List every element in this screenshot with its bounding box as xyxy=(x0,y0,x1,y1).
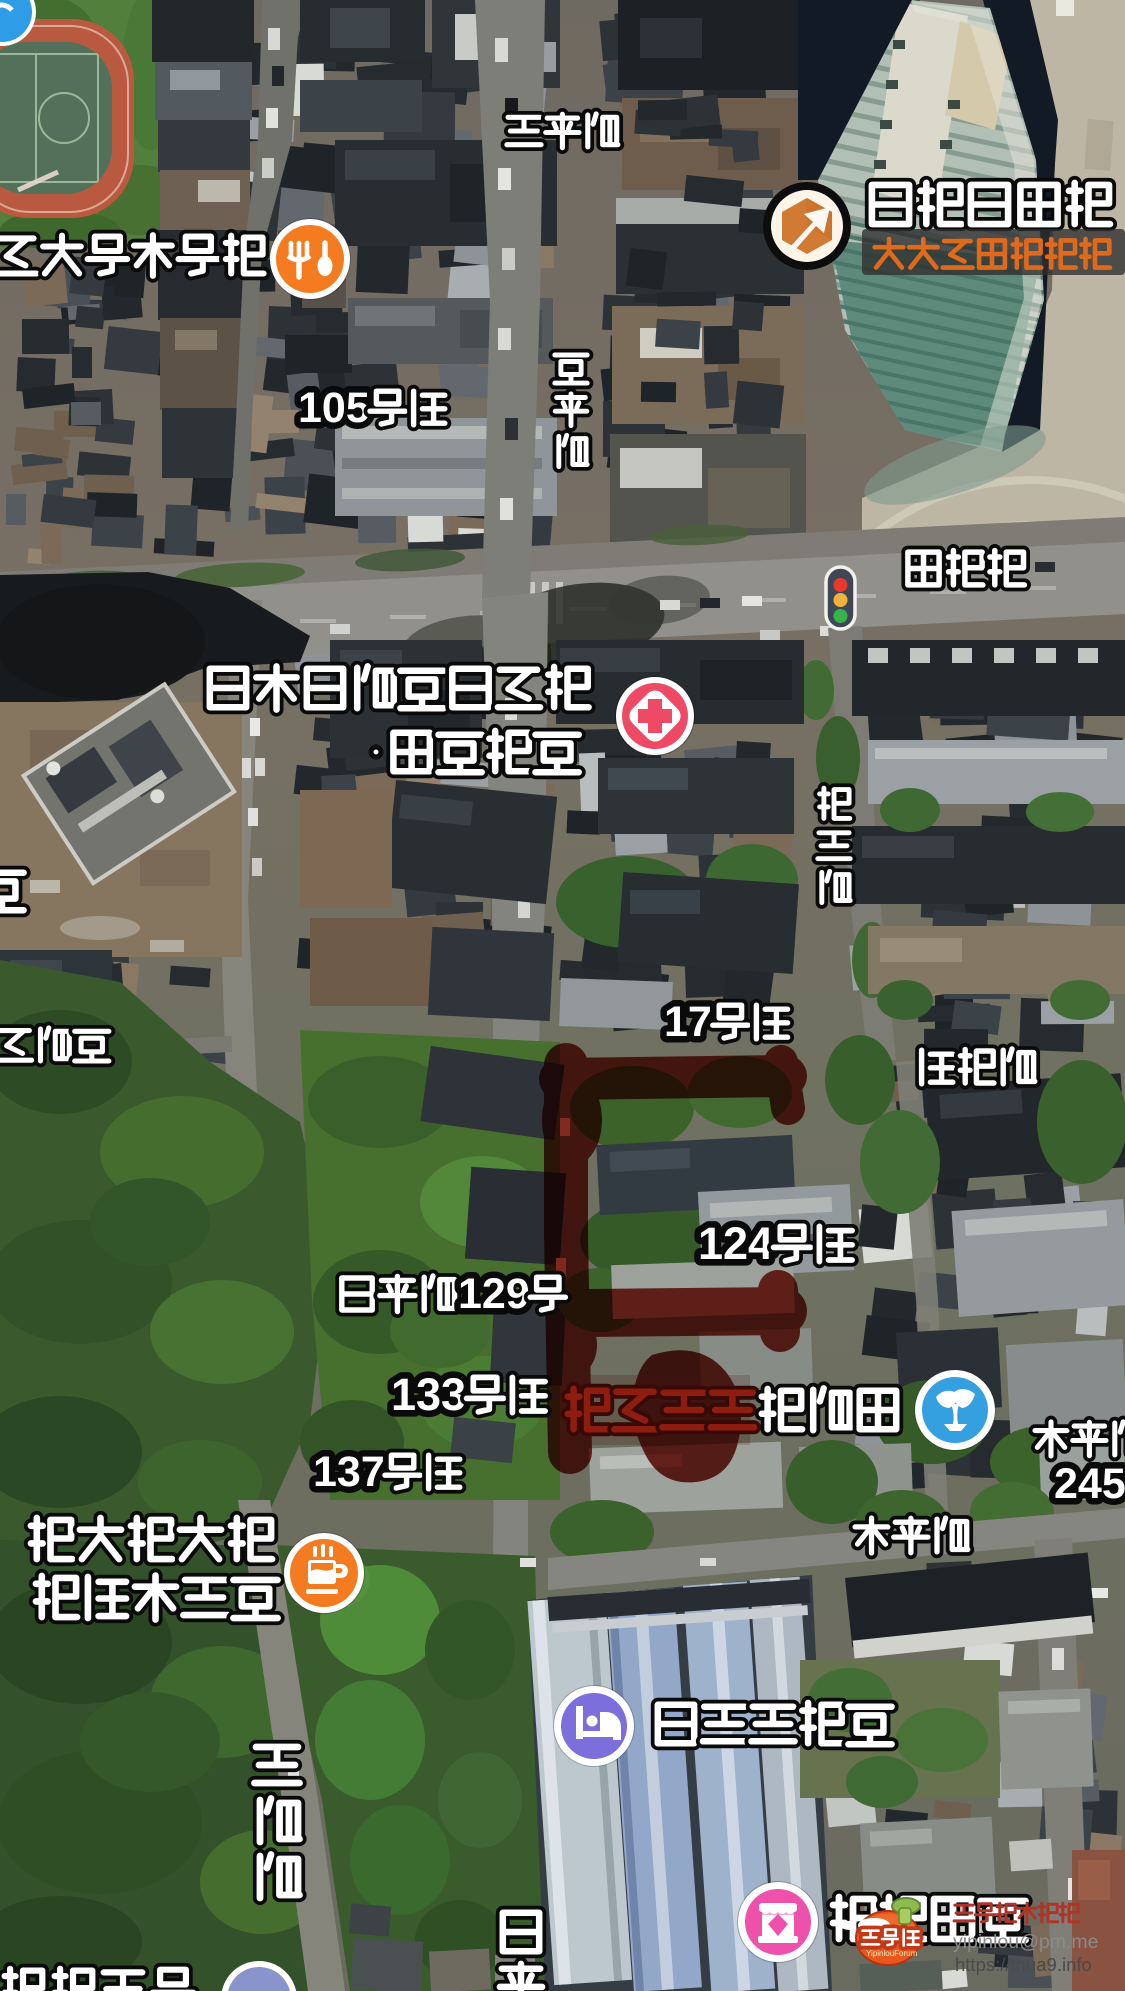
svg-text:245: 245 xyxy=(1054,1460,1125,1508)
svg-text:17: 17 xyxy=(664,998,712,1046)
svg-text:137: 137 xyxy=(313,1448,385,1496)
svg-text:105: 105 xyxy=(298,384,370,432)
svg-text:https://thua9.info: https://thua9.info xyxy=(955,1954,1092,1975)
svg-text:yipinlou@pm.me: yipinlou@pm.me xyxy=(953,1931,1099,1953)
svg-text:124: 124 xyxy=(698,1218,773,1269)
svg-text:YipinlouForum: YipinlouForum xyxy=(866,1949,918,1958)
svg-text:129: 129 xyxy=(458,1270,530,1318)
svg-text:133: 133 xyxy=(391,1369,466,1420)
